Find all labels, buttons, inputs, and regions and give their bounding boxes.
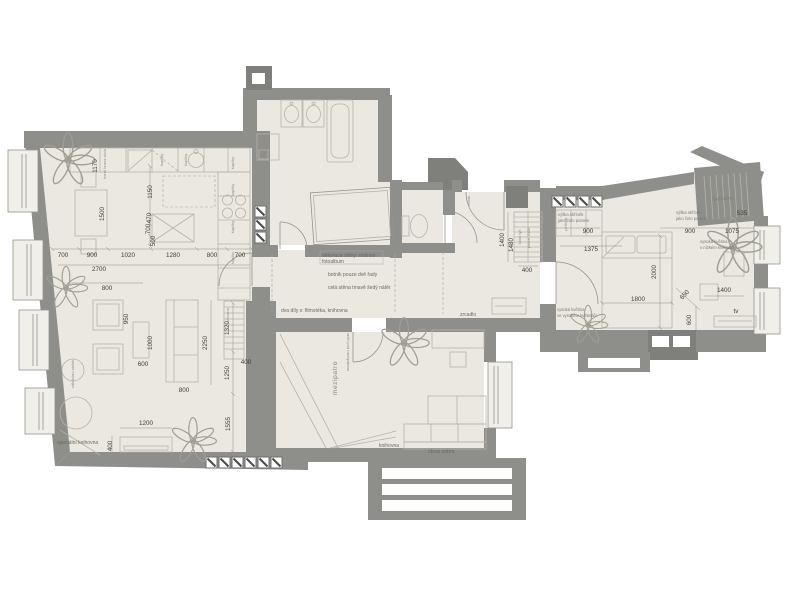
plan-label: 900 (685, 228, 696, 235)
vent-icon (271, 457, 282, 468)
plan-label: 500 (150, 235, 157, 246)
plan-label: 600 (138, 361, 149, 368)
plan-label: 800 (207, 252, 218, 259)
plan-label: jako čelo postele (675, 216, 708, 221)
plan-label: fotoalbum (322, 259, 344, 265)
plan-label: šuplíky (183, 154, 188, 166)
plan-label: vysoká květina (700, 239, 728, 244)
plan-label: 1800 (631, 296, 646, 303)
plan-label: šatní tyč (517, 230, 522, 245)
plan-label: 1250 (224, 366, 231, 381)
plan-label: dva díly s: filmotéka, knihovna (281, 308, 348, 314)
plan-label: šuplíky (230, 252, 235, 264)
plan-label: knihovna (225, 307, 230, 324)
window (8, 150, 38, 212)
plan-label: 1400 (499, 233, 506, 248)
plan-label: botník pouze dvě řady (328, 272, 378, 278)
vent-icon (255, 219, 266, 230)
floor-wc (402, 190, 443, 243)
window (13, 240, 43, 300)
plan-label: v nízkém květináči (700, 245, 734, 250)
plan-label: 1075 (725, 228, 740, 235)
plan-label: 1375 (584, 246, 599, 253)
plan-label: peřiňák (563, 217, 568, 230)
vent-icon (565, 196, 576, 207)
window (25, 388, 55, 434)
window (488, 362, 512, 428)
plan-label: 900 (583, 228, 594, 235)
plan-label: šuplíky (230, 221, 235, 233)
plan-label: 1280 (166, 252, 181, 259)
plan-label: věšák (466, 196, 471, 206)
plan-label: police 2000 (526, 227, 531, 248)
plan-label: 700 (235, 252, 246, 259)
plan-label: tv (734, 308, 740, 315)
plan-label: výška skříněk (676, 210, 702, 215)
plan-label: šuplíky (159, 154, 164, 166)
floor-bathroom (255, 100, 390, 245)
plan-label: 400 (241, 359, 252, 366)
plan-label: 1000 (147, 336, 154, 351)
plan-label: 1020 (121, 252, 136, 259)
plan-label: speciální knihovna (57, 440, 98, 446)
vent-icon (206, 457, 217, 468)
plan-label: horní hrana stolu (102, 149, 107, 179)
plan-label: 950 (123, 313, 130, 324)
vent-icon (552, 196, 563, 207)
plan-label: 400 (522, 267, 533, 274)
plan-label: vysoká květina (557, 307, 585, 312)
window (19, 310, 49, 370)
plan-label: 900 (87, 252, 98, 259)
plan-label: odkládací stolek (70, 360, 75, 389)
floor-plan-svg: 1170150011504707005007009001020128080070… (0, 0, 800, 600)
plan-label: 2250 (202, 336, 209, 351)
plan-label: 700 (145, 223, 152, 234)
plan-label: 700 (58, 252, 69, 259)
plan-label: ve vysokém květináči (557, 313, 597, 318)
plan-label: mezipatro (332, 361, 339, 395)
vent-icon (255, 206, 266, 217)
plan-label: 470 (146, 212, 153, 223)
vent-icon (245, 457, 256, 468)
plan-label: 800 (102, 285, 113, 292)
plan-label: 1150 (147, 185, 154, 199)
plan-label: zrcadlo (460, 312, 476, 318)
plan-label: 800 (179, 387, 190, 394)
plan-label: skříň pod mezipatrem (346, 333, 351, 372)
vent-icon (578, 196, 589, 207)
plan-label: 535 (737, 210, 748, 217)
plan-label: 1200 (139, 420, 154, 427)
plan-label: 1400 (717, 287, 732, 294)
plan-label: celá stěna tmavě šedý nátěr (328, 285, 391, 291)
plan-label: 2000 (651, 265, 658, 280)
vent-icon (232, 457, 243, 468)
plan-label: výška skříněk (558, 212, 584, 217)
vent-icon (591, 196, 602, 207)
floor-plan-canvas: 1170150011504707005007009001020128080070… (0, 0, 800, 600)
plan-label: obraz zebra (428, 449, 455, 455)
floor-mezzanine-room (276, 332, 484, 448)
plan-label: šuplíky (230, 184, 235, 196)
plan-label: 1170 (92, 159, 99, 173)
plan-label: 1480 (508, 238, 515, 253)
vent-icon (219, 457, 230, 468)
plan-label: 400 (107, 440, 114, 451)
plan-label: knihovna (379, 443, 399, 449)
plan-label: 600 (686, 314, 693, 325)
plan-label: jako čelo postele (557, 218, 590, 223)
vent-icon (258, 457, 269, 468)
plan-label: 1555 (225, 417, 232, 432)
vent-icon (255, 232, 266, 243)
plan-label: šuplíky (230, 157, 235, 169)
plan-label: 2700 (92, 266, 107, 273)
plan-label: 1500 (99, 207, 106, 222)
window (754, 288, 780, 334)
